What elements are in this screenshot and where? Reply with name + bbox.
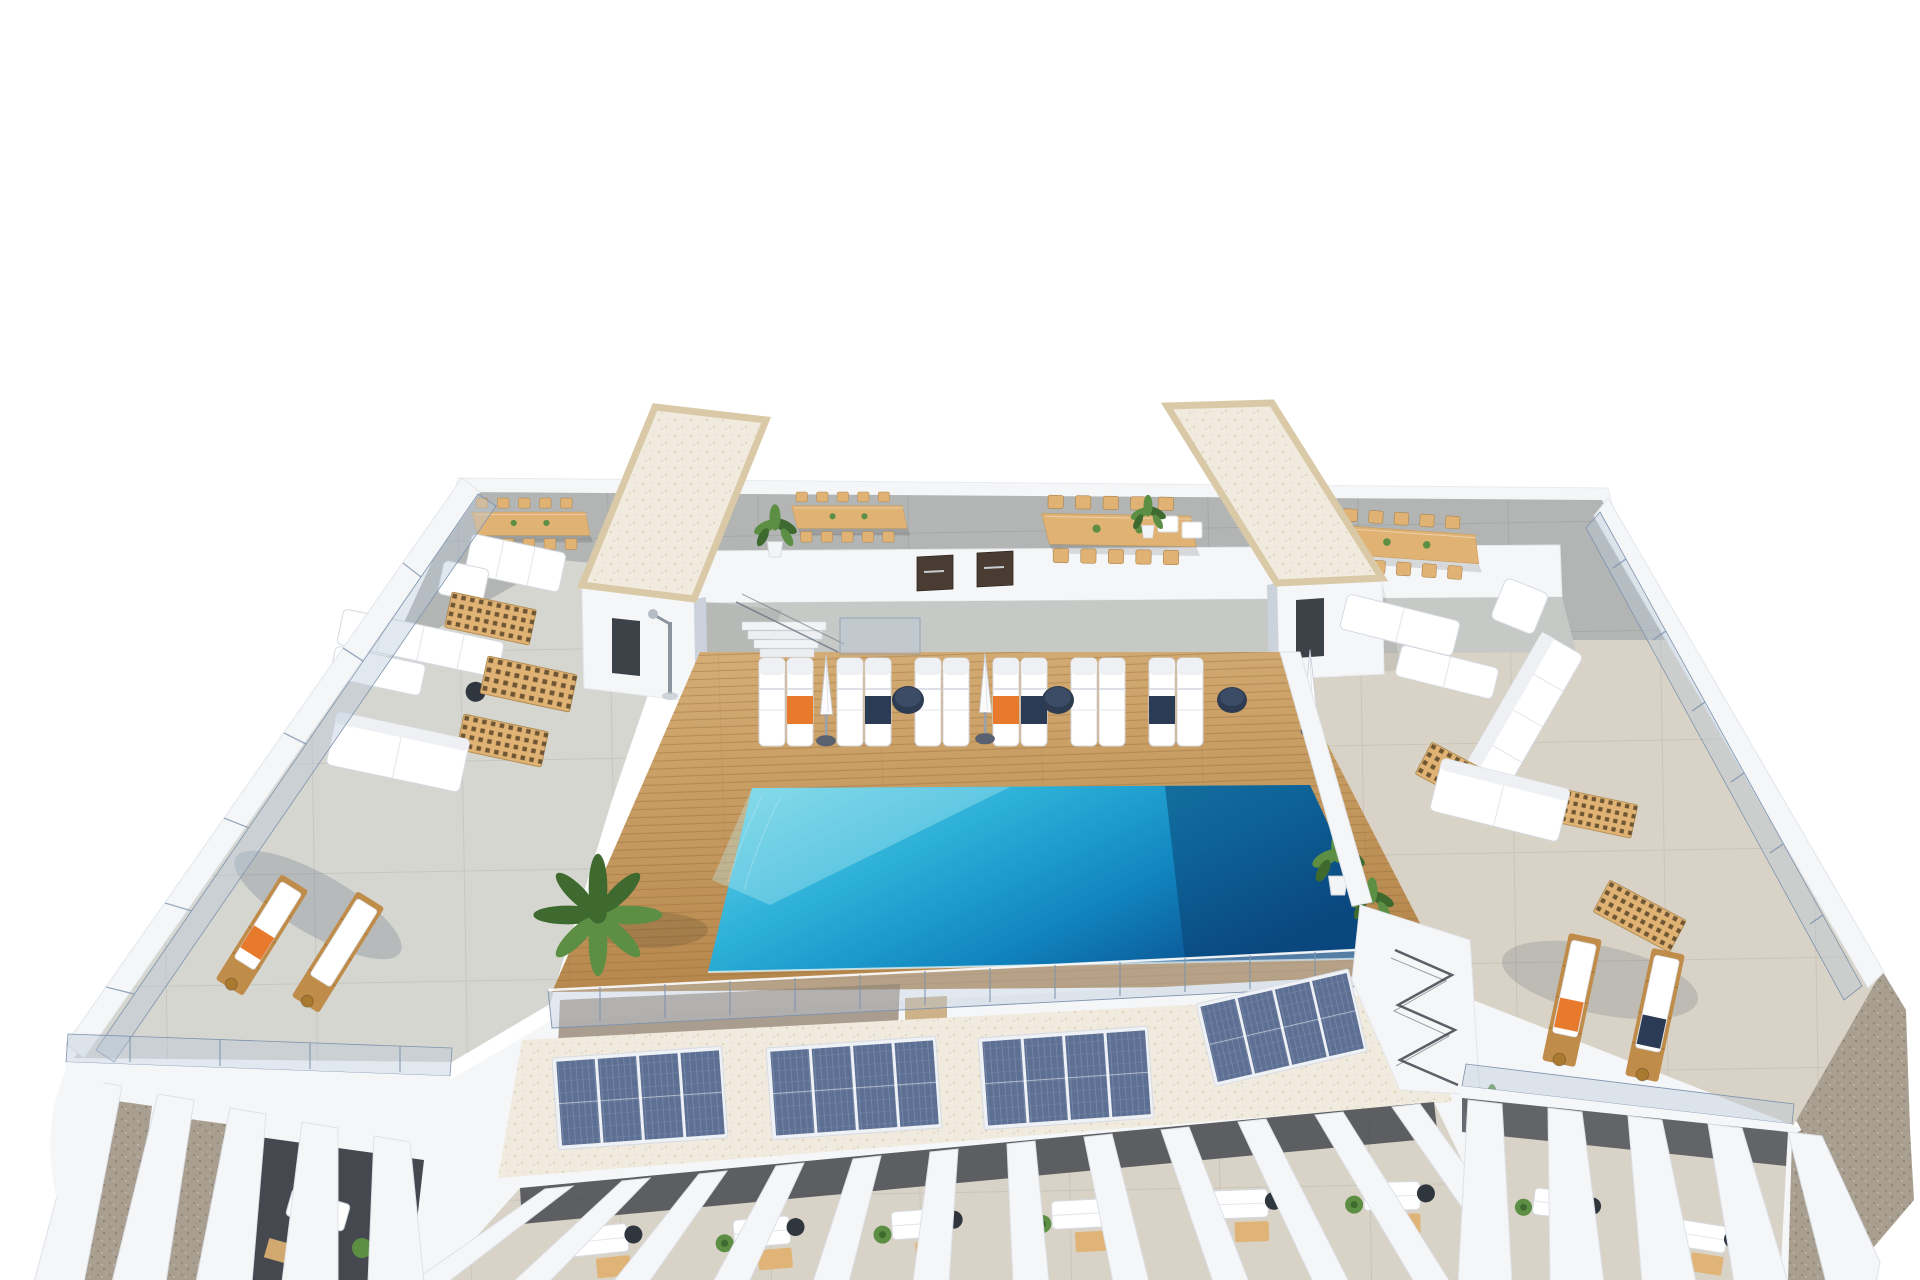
solar-array-1 xyxy=(552,1046,728,1150)
towel-navy-3 xyxy=(1149,696,1175,724)
side-table-1 xyxy=(892,686,924,714)
render-canvas xyxy=(0,0,1920,1280)
pool xyxy=(708,785,1390,972)
ac-unit-2 xyxy=(1182,522,1202,538)
side-table-2 xyxy=(1042,686,1074,714)
towel-orange-2 xyxy=(993,696,1019,724)
right-tower-door xyxy=(1296,598,1324,658)
rooftop-scene xyxy=(0,0,1920,1280)
solar-array-3 xyxy=(978,1026,1154,1130)
left-tower-door xyxy=(612,618,640,676)
deck-lounger-3 xyxy=(837,658,863,746)
deck-lounger-10 xyxy=(1099,658,1125,746)
storage-door-2-handle xyxy=(984,567,1004,568)
storage-door-1-handle xyxy=(924,571,944,572)
deck-lounger-9 xyxy=(1071,658,1097,746)
towel-orange-1 xyxy=(787,696,813,724)
deck-lounger-12 xyxy=(1177,658,1203,746)
stair-glass-panel xyxy=(840,618,920,654)
solar-array-2 xyxy=(766,1036,942,1140)
deck-lounger-6 xyxy=(943,658,969,746)
towel-navy-1 xyxy=(865,696,891,724)
deck-lounger-1 xyxy=(759,658,785,746)
storage-door-2 xyxy=(977,551,1013,587)
side-table-3 xyxy=(1217,687,1247,713)
storage-door-1 xyxy=(917,555,953,591)
